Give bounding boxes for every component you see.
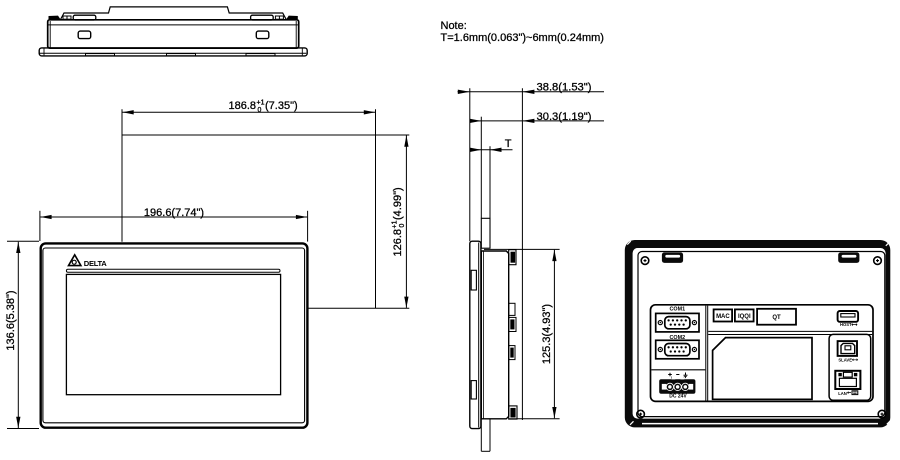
svg-text:DC 24V: DC 24V [669,393,687,399]
svg-text:126.8: 126.8 [392,229,404,257]
svg-text:(7.35"): (7.35") [265,100,298,112]
svg-text:125.3(4.93"): 125.3(4.93") [541,304,553,364]
svg-text:DELTA: DELTA [84,259,107,268]
svg-text:0: 0 [399,224,406,228]
svg-text:LAN: LAN [838,391,847,396]
svg-text:186.8: 186.8 [229,100,257,112]
svg-text:196.6(7.74"): 196.6(7.74") [144,207,204,219]
svg-text:T=1.6mm(0.063")~6mm(0.24mm): T=1.6mm(0.063")~6mm(0.24mm) [441,32,604,44]
svg-text:+1: +1 [391,220,398,228]
svg-text:0: 0 [258,107,262,114]
svg-text:+1: +1 [257,99,265,106]
svg-text:COM1: COM1 [670,307,686,313]
svg-text:T: T [505,138,512,150]
svg-text:MAC: MAC [716,314,730,320]
svg-text:QT: QT [772,315,781,321]
svg-text:IQQI: IQQI [738,314,751,320]
svg-text:SLAVE: SLAVE [838,357,852,362]
svg-text:Note:: Note: [441,20,467,32]
svg-text:HOST: HOST [840,322,852,327]
svg-text:30.3(1.19"): 30.3(1.19") [537,111,592,123]
svg-text:(4.99"): (4.99") [392,187,404,220]
svg-text:136.6(5.38"): 136.6(5.38") [5,290,17,350]
svg-text:38.8(1.53"): 38.8(1.53") [537,82,592,94]
